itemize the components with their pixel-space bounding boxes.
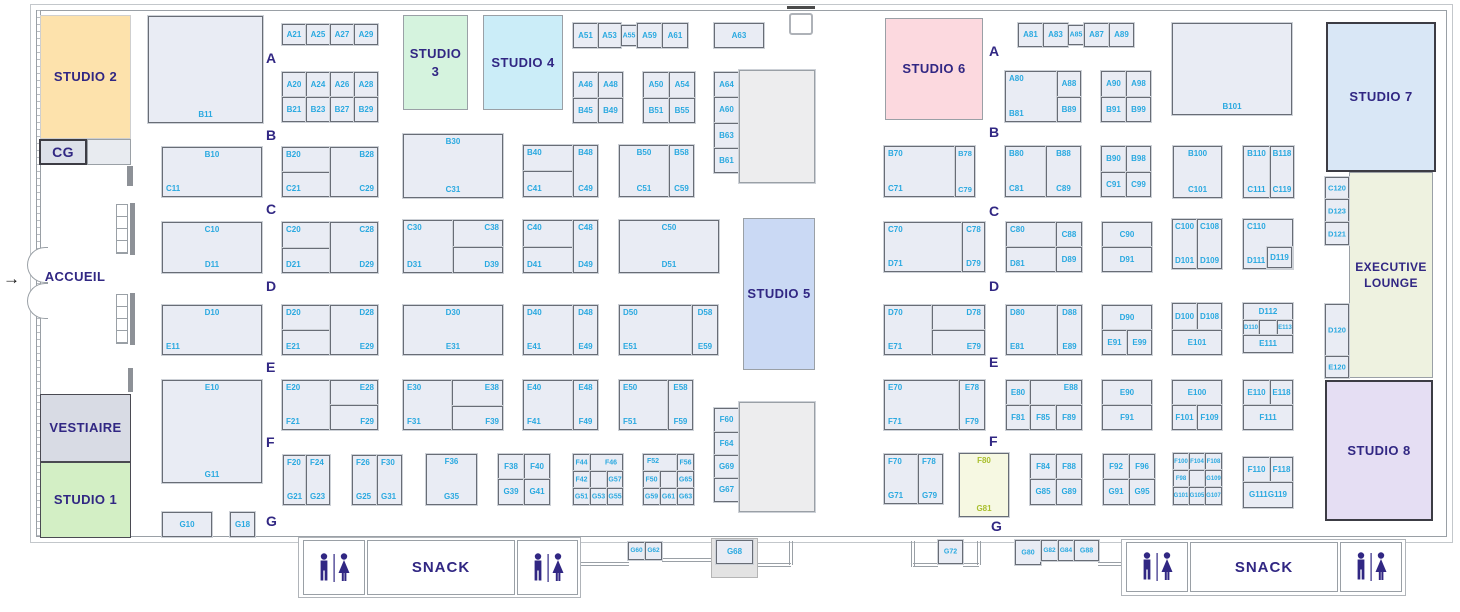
booth-g62[interactable]: G62 (645, 542, 662, 560)
booth-b89[interactable]: B89 (1057, 97, 1081, 122)
booth-a98[interactable]: A98 (1126, 71, 1151, 97)
booth-f60[interactable]: F60 (714, 408, 739, 432)
booth-a27[interactable]: A27 (330, 24, 354, 45)
booth-label: E118 (1272, 389, 1290, 397)
booth-b98[interactable]: B98 (1126, 146, 1151, 172)
booth-g88[interactable]: G88 (1074, 540, 1099, 561)
booth-g80[interactable]: G80 (1015, 540, 1041, 565)
booth-label: A88 (1062, 80, 1077, 88)
booth-a48[interactable]: A48 (598, 72, 623, 98)
booth-c21[interactable]: C21 (282, 172, 330, 197)
booth-b88[interactable]: B88C89 (1046, 146, 1081, 197)
executive-lounge[interactable]: EXECUTIVE LOUNGE (1349, 172, 1433, 378)
booth-d91[interactable]: D91 (1102, 247, 1152, 272)
booth-d50[interactable]: D50E51 (619, 305, 692, 355)
booth-label: D10 (163, 309, 261, 317)
booth-f20[interactable]: F20G21 (283, 455, 306, 505)
booth-label: A98 (1131, 80, 1146, 88)
booth-label: C88 (1062, 231, 1077, 239)
booth-f50[interactable]: F50 (643, 471, 660, 488)
booth-label: C51 (620, 185, 668, 193)
booth-b30[interactable]: B30C31 (403, 134, 503, 198)
booth-label: E79 (967, 343, 981, 351)
studio-1[interactable]: STUDIO 1 (40, 462, 131, 538)
booth-b51[interactable]: B51 (643, 98, 669, 123)
studio-2-label: STUDIO 2 (54, 68, 117, 86)
booth-a60[interactable]: A60 (714, 97, 739, 123)
booth-b20[interactable]: B20 (282, 147, 330, 172)
booth-c108[interactable]: C108D109 (1197, 219, 1222, 269)
vestiaire[interactable]: VESTIAIRE (40, 394, 131, 462)
booth-label: D81 (1010, 260, 1025, 268)
booth-cell[interactable] (590, 471, 607, 488)
booth-e110[interactable]: E110 (1243, 380, 1270, 405)
booth-c78[interactable]: C78D79 (962, 222, 985, 272)
booth-a63[interactable]: A63 (714, 23, 764, 48)
booth-label: E80 (1011, 389, 1025, 397)
booth-c100[interactable]: C100D101 (1172, 219, 1197, 269)
booth-a50[interactable]: A50 (643, 72, 669, 98)
booth-g84[interactable]: G84 (1058, 540, 1074, 561)
booth-label: E29 (360, 343, 374, 351)
booth-d10[interactable]: D10E11 (162, 305, 262, 355)
booth-f26[interactable]: F26G25 (352, 455, 377, 505)
booth-b61[interactable]: B61 (714, 148, 739, 173)
booth-d119[interactable]: D119 (1267, 247, 1292, 268)
booth-label: D51 (620, 261, 718, 269)
booth-b63[interactable]: B63 (714, 123, 739, 148)
booth-d108[interactable]: D108 (1197, 303, 1222, 330)
booth-f29[interactable]: F29 (330, 405, 378, 430)
booth-g105[interactable]: G105 (1189, 487, 1205, 505)
booth-a87[interactable]: A87 (1084, 23, 1109, 47)
booth-f52[interactable]: F52 (643, 454, 677, 471)
booth-cell[interactable] (1259, 320, 1277, 335)
booth-c88[interactable]: C88 (1056, 222, 1082, 247)
booth-g67[interactable]: G67 (714, 478, 739, 502)
booth-e99[interactable]: E99 (1127, 330, 1152, 355)
booth-label: A21 (287, 31, 302, 39)
booth-a25[interactable]: A25 (306, 24, 330, 45)
booth-d90[interactable]: D90 (1102, 305, 1152, 330)
booth-f96[interactable]: F96 (1129, 454, 1155, 479)
booth-g59[interactable]: G59 (643, 488, 660, 505)
booth-label: G68 (727, 548, 742, 556)
booth-label: F96 (1135, 463, 1149, 471)
booth-label: C41 (527, 185, 542, 193)
booth-e120[interactable]: E120 (1325, 356, 1349, 378)
booth-label: A46 (578, 81, 593, 89)
booth-c20[interactable]: C20 (282, 222, 330, 248)
booth-b90[interactable]: B90 (1101, 146, 1126, 172)
booth-c120[interactable]: C120 (1325, 177, 1349, 199)
booth-label: D101 (1173, 257, 1196, 265)
booth-f92[interactable]: F92 (1103, 454, 1129, 479)
snack-area-right[interactable]: SNACK (1190, 542, 1338, 592)
booth-b99[interactable]: B99 (1126, 97, 1151, 122)
booth-label: G10 (179, 521, 194, 529)
booth-e58[interactable]: E58F59 (668, 380, 693, 430)
booth-g41[interactable]: G41 (524, 479, 550, 505)
booth-g61[interactable]: G61 (660, 488, 677, 505)
booth-a81[interactable]: A81 (1018, 23, 1043, 47)
booth-label: B11 (149, 111, 262, 119)
cg-annex[interactable] (87, 139, 131, 165)
booth-d88[interactable]: D88E89 (1057, 305, 1082, 355)
booth-a85[interactable]: A85 (1068, 25, 1084, 45)
booth-label: F78 (922, 458, 936, 466)
booth-b11[interactable]: B11 (148, 16, 263, 123)
booth-label: D41 (527, 261, 542, 269)
booth-b40[interactable]: B40 (523, 145, 573, 171)
booth-label: G61 (662, 493, 675, 500)
booth-label: B30 (404, 138, 502, 146)
booth-f80[interactable]: F80G81 (959, 453, 1009, 517)
booth-label: B99 (1131, 106, 1146, 114)
booth-b91[interactable]: B91 (1101, 97, 1126, 122)
booth-d39[interactable]: D39 (453, 247, 503, 273)
booth-a29[interactable]: A29 (354, 24, 378, 45)
booth-f109[interactable]: F109 (1197, 405, 1222, 430)
booth-b55[interactable]: B55 (669, 98, 695, 123)
booth-b29[interactable]: B29 (354, 97, 378, 122)
booth-g82[interactable]: G82 (1041, 540, 1058, 561)
booth-f110[interactable]: F110 (1243, 457, 1270, 482)
studio-2[interactable]: STUDIO 2 (40, 15, 131, 139)
booth-e90[interactable]: E90 (1102, 380, 1152, 405)
booth-f108[interactable]: F108 (1205, 453, 1222, 470)
booth-f38[interactable]: F38 (498, 454, 524, 479)
booth-e100[interactable]: E100 (1172, 380, 1222, 405)
booth-c70[interactable]: C70D71 (884, 222, 962, 272)
booth-f39[interactable]: F39 (452, 406, 503, 430)
booth-label: E58 (669, 384, 692, 392)
booth-d28[interactable]: D28E29 (330, 305, 378, 355)
booth-label: D100 (1175, 313, 1194, 321)
booth-d100[interactable]: D100 (1172, 303, 1197, 330)
booth-e38[interactable]: E38 (452, 380, 503, 406)
booth-label: C100 (1173, 223, 1196, 231)
booth-label: G35 (427, 493, 476, 501)
booth-b45[interactable]: B45 (573, 98, 598, 123)
booth-d80[interactable]: D80E81 (1006, 305, 1057, 355)
booth-a83[interactable]: A83 (1043, 23, 1068, 47)
booth-e21[interactable]: E21 (282, 330, 330, 355)
booth-label: C30 (407, 224, 422, 232)
booth-b78[interactable]: B78C79 (955, 146, 975, 197)
booth-label: G57 (608, 476, 621, 483)
wall-bar (127, 166, 133, 186)
booth-g69[interactable]: G69 (714, 455, 739, 478)
restroom-left-2[interactable] (517, 540, 578, 595)
booth-a54[interactable]: A54 (669, 72, 695, 98)
accueil-label: ACCUEIL (45, 268, 106, 286)
booth-label: G111 (1249, 491, 1268, 499)
booth-e111[interactable]: E111 (1243, 335, 1293, 353)
studio-7[interactable]: STUDIO 7 (1326, 22, 1436, 172)
booth-e91[interactable]: E91 (1102, 330, 1127, 355)
booth-e20[interactable]: E20F21 (282, 380, 330, 430)
booth-b70[interactable]: B70C71 (884, 146, 955, 197)
booth-a24[interactable]: A24 (306, 72, 330, 97)
booth-label: E81 (1010, 343, 1024, 351)
wall-bar (130, 293, 135, 345)
booth-d123[interactable]: D123 (1325, 199, 1349, 222)
booth-label: D21 (286, 261, 301, 269)
booth-f36[interactable]: F36G35 (426, 454, 477, 505)
top-wall-door-marker (787, 6, 815, 9)
row-label-f: F (989, 434, 998, 448)
top-wall-door (789, 13, 813, 35)
booth-label: D40 (527, 309, 542, 317)
booth-label: F64 (720, 440, 734, 448)
booth-g51[interactable]: G51 (573, 488, 590, 505)
booth-e118[interactable]: E118 (1270, 380, 1293, 405)
booth-a28[interactable]: A28 (354, 72, 378, 97)
booth-label: E113 (1278, 325, 1292, 331)
booth-e30[interactable]: E30F31 (403, 380, 452, 430)
booth-c28[interactable]: C28D29 (330, 222, 378, 273)
booth-e70[interactable]: E70F71 (884, 380, 959, 430)
booth-label: E120 (1328, 363, 1346, 371)
booth-c90[interactable]: C90 (1102, 222, 1152, 247)
booth-label: F49 (574, 418, 597, 426)
booth-f84[interactable]: F84 (1030, 454, 1056, 479)
booth-label: D29 (359, 261, 374, 269)
booth-label: A51 (578, 32, 593, 40)
booth-g89[interactable]: G89 (1056, 479, 1082, 505)
booth-label: F56 (679, 459, 691, 466)
booth-cell[interactable] (660, 471, 677, 488)
booth-g10[interactable]: G10 (162, 512, 212, 537)
booth-c48[interactable]: C48D49 (573, 220, 598, 273)
booth-f70[interactable]: F70G71 (884, 454, 918, 504)
booth-b21[interactable]: B21 (282, 97, 306, 122)
booth-f88[interactable]: F88 (1056, 454, 1082, 479)
booth-c50[interactable]: C50D51 (619, 220, 719, 273)
restroom-right-1[interactable] (1126, 542, 1188, 592)
booth-f81[interactable]: F81 (1006, 405, 1030, 430)
booth-g85[interactable]: G85 (1030, 479, 1056, 505)
booth-f64[interactable]: F64 (714, 432, 739, 455)
booth-label: B10 (163, 151, 261, 159)
booth-label: E78 (960, 384, 984, 392)
studio-4[interactable]: STUDIO 4 (483, 15, 563, 110)
booth-a80[interactable]: A80B81 (1005, 71, 1057, 122)
snack-label: SNACK (1235, 559, 1293, 576)
booth-f89[interactable]: F89 (1056, 405, 1082, 430)
booth-g63[interactable]: G63 (677, 488, 694, 505)
booth-e40[interactable]: E40F41 (523, 380, 573, 430)
booth-b10[interactable]: B10C11 (162, 147, 262, 197)
booth-label: G69 (719, 463, 734, 471)
booth-c30[interactable]: C30D31 (403, 220, 453, 273)
booth-c99[interactable]: C99 (1126, 172, 1151, 197)
booth-e28[interactable]: E28 (330, 380, 378, 405)
booth-f98[interactable]: F98 (1173, 470, 1189, 487)
booth-label: D11 (163, 261, 261, 269)
booth-d58[interactable]: D58E59 (692, 305, 718, 355)
booth-b118[interactable]: B118C119 (1270, 146, 1294, 198)
booth-f56[interactable]: F56 (677, 454, 694, 471)
studio-3[interactable]: STUDIO 3 (403, 15, 468, 110)
booth-b101[interactable]: B101 (1172, 23, 1292, 115)
booth-g55[interactable]: G55 (607, 488, 623, 505)
booth-d89[interactable]: D89 (1056, 247, 1082, 272)
booth-a89[interactable]: A89 (1109, 23, 1134, 47)
booth-d70[interactable]: D70E71 (884, 305, 932, 355)
booth-d112[interactable]: D112 (1243, 303, 1293, 320)
booth-b23[interactable]: B23 (306, 97, 330, 122)
booth-f91[interactable]: F91 (1102, 405, 1152, 430)
booth-label: B91 (1106, 106, 1121, 114)
booth-g91[interactable]: G91 (1103, 479, 1129, 505)
booth-c10[interactable]: C10D11 (162, 222, 262, 273)
booth-a46[interactable]: A46 (573, 72, 598, 98)
booth-g111[interactable]: G111G119 (1243, 482, 1293, 508)
booth-d48[interactable]: D48E49 (573, 305, 598, 355)
studio-6[interactable]: STUDIO 6 (885, 18, 983, 120)
booth-d120[interactable]: D120 (1325, 304, 1349, 356)
cg-desk[interactable]: CG (39, 139, 87, 165)
booth-label: G109 (1206, 476, 1221, 482)
booth-label: A24 (311, 81, 326, 89)
booth-c40[interactable]: C40 (523, 220, 573, 247)
studio-8[interactable]: STUDIO 8 (1325, 380, 1433, 521)
booth-f44[interactable]: F44 (573, 454, 590, 471)
booth-e10[interactable]: E10G11 (162, 380, 262, 483)
booth-label: G101 (1174, 493, 1189, 499)
booth-label: F89 (1062, 414, 1076, 422)
booth-d21[interactable]: D21 (282, 248, 330, 273)
booth-label: F26 (356, 459, 370, 467)
booth-label: E90 (1120, 389, 1134, 397)
booth-f40[interactable]: F40 (524, 454, 550, 479)
booth-f100[interactable]: F100 (1173, 453, 1189, 470)
booth-g109[interactable]: G109 (1205, 470, 1222, 487)
booth-b28[interactable]: B28C29 (330, 147, 378, 197)
booth-a26[interactable]: A26 (330, 72, 354, 97)
booth-b48[interactable]: B48C49 (573, 145, 598, 197)
booth-d78[interactable]: D78 (932, 305, 985, 330)
booth-f85[interactable]: F85 (1030, 405, 1056, 430)
booth-g65[interactable]: G65 (677, 471, 694, 488)
booth-f118[interactable]: F118 (1270, 457, 1293, 482)
booth-g72[interactable]: G72 (938, 540, 963, 564)
booth-b27[interactable]: B27 (330, 97, 354, 122)
booth-b50[interactable]: B50C51 (619, 145, 669, 197)
booth-e113[interactable]: E113 (1277, 320, 1293, 335)
booth-c41[interactable]: C41 (523, 171, 573, 197)
booth-d41[interactable]: D41 (523, 247, 573, 273)
booth-d110[interactable]: D110 (1243, 320, 1259, 335)
booth-c91[interactable]: C91 (1101, 172, 1126, 197)
booth-label: F111 (1259, 414, 1276, 422)
booth-b58[interactable]: B58C59 (669, 145, 694, 197)
bottom-wall-segment (913, 563, 938, 567)
booth-g107[interactable]: G107 (1205, 487, 1222, 505)
booth-label: C108 (1198, 223, 1221, 231)
booth-d20[interactable]: D20 (282, 305, 330, 330)
booth-g60[interactable]: G60 (628, 542, 645, 560)
booth-f30[interactable]: F30G31 (377, 455, 402, 505)
booth-label: A59 (642, 32, 657, 40)
restroom-right-2[interactable] (1340, 542, 1402, 592)
booth-d40[interactable]: D40E41 (523, 305, 573, 355)
booth-a55[interactable]: A55 (621, 25, 637, 46)
booth-label: G59 (645, 493, 658, 500)
booth-e88[interactable]: E88 (1030, 380, 1082, 405)
booth-e78[interactable]: E78F79 (959, 380, 985, 430)
service-block (739, 402, 815, 512)
booth-b100[interactable]: B100C101 (1173, 146, 1222, 198)
booth-b110[interactable]: B110C111 (1243, 146, 1270, 198)
booth-a61[interactable]: A61 (662, 23, 688, 48)
booth-g101[interactable]: G101 (1173, 487, 1189, 505)
booth-f111[interactable]: F111 (1243, 405, 1293, 430)
booth-f104[interactable]: F104 (1189, 453, 1205, 470)
booth-e79[interactable]: E79 (932, 330, 985, 355)
booth-a53[interactable]: A53 (598, 23, 621, 48)
booth-label: G60 (630, 548, 642, 555)
booth-f78[interactable]: F78G79 (918, 454, 943, 504)
booth-e48[interactable]: E48F49 (573, 380, 598, 430)
booth-label: B101 (1173, 103, 1291, 111)
booth-e80[interactable]: E80 (1006, 380, 1030, 405)
booth-label: E41 (527, 343, 541, 351)
booth-g57[interactable]: G57 (607, 471, 623, 488)
booth-label: F50 (645, 476, 657, 483)
booth-f24[interactable]: F24G23 (306, 455, 330, 505)
booth-d30[interactable]: D30E31 (403, 305, 503, 355)
booth-c80[interactable]: C80 (1006, 222, 1056, 247)
booth-d121[interactable]: D121 (1325, 222, 1349, 245)
booth-label: F84 (1036, 463, 1050, 471)
studio-5[interactable]: STUDIO 5 (743, 218, 815, 370)
booth-g39[interactable]: G39 (498, 479, 524, 505)
booth-cell[interactable] (1189, 470, 1205, 487)
restroom-left-1[interactable] (303, 540, 365, 595)
booth-e50[interactable]: E50F51 (619, 380, 668, 430)
booth-label: B98 (1131, 155, 1146, 163)
booth-a21[interactable]: A21 (282, 24, 306, 45)
booth-a88[interactable]: A88 (1057, 71, 1081, 97)
booth-f101[interactable]: F101 (1172, 405, 1197, 430)
booth-b80[interactable]: B80C81 (1005, 146, 1046, 197)
booth-a51[interactable]: A51 (573, 23, 598, 48)
snack-area-left[interactable]: SNACK (367, 540, 515, 595)
booth-label: F36 (427, 458, 476, 466)
booth-g95[interactable]: G95 (1129, 479, 1155, 505)
booth-g68[interactable]: G68 (716, 540, 753, 564)
booth-label: G65 (679, 476, 692, 483)
booth-a90[interactable]: A90 (1101, 71, 1126, 97)
booth-f42[interactable]: F42 (573, 471, 590, 488)
booth-b49[interactable]: B49 (598, 98, 623, 123)
booth-label: F70 (888, 458, 902, 466)
booth-c38[interactable]: C38 (453, 220, 503, 247)
booth-f46[interactable]: F46 (590, 454, 623, 471)
booth-e101[interactable]: E101 (1172, 330, 1222, 355)
booth-g53[interactable]: G53 (590, 488, 607, 505)
booth-a59[interactable]: A59 (637, 23, 662, 48)
wall-pillar (116, 294, 128, 344)
booth-d81[interactable]: D81 (1006, 247, 1056, 272)
booth-label: G41 (529, 488, 544, 496)
booth-a20[interactable]: A20 (282, 72, 306, 97)
booth-a64[interactable]: A64 (714, 72, 739, 97)
booth-g18[interactable]: G18 (230, 512, 255, 537)
